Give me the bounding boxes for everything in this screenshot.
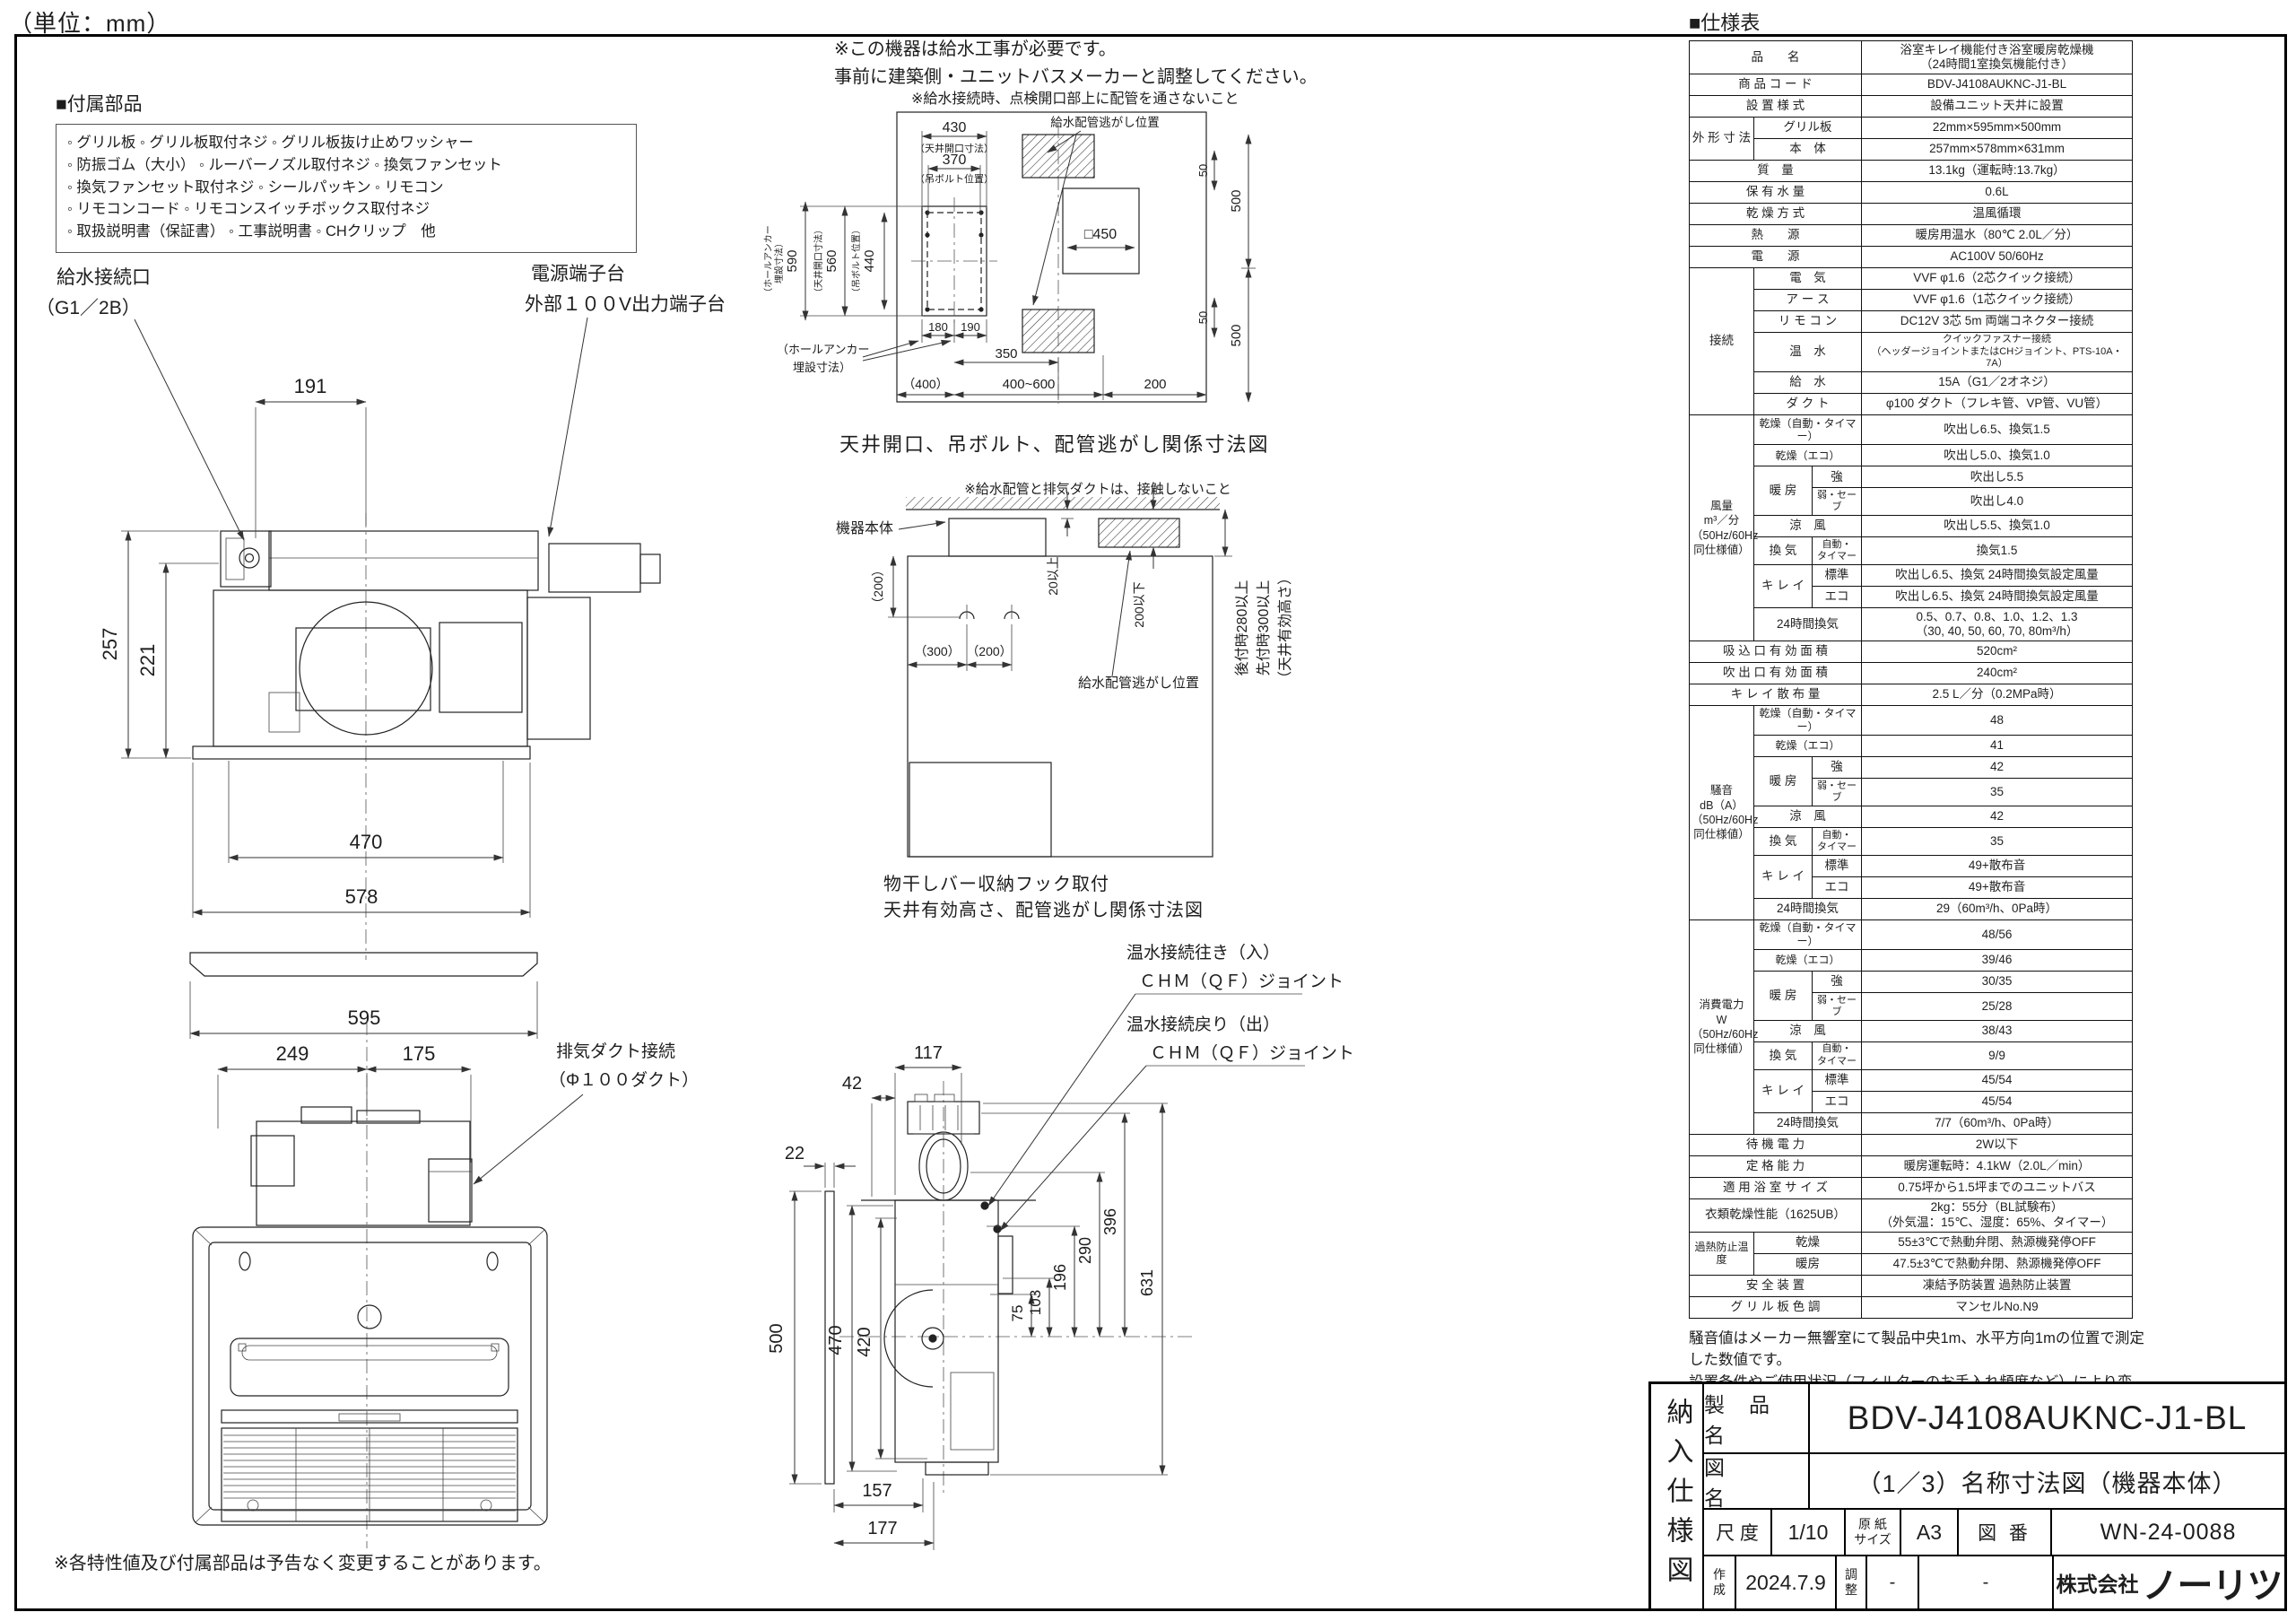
spec-cell: 熱 源	[1690, 224, 1862, 246]
spec-cell: VVF φ1.6（1芯クイック接続）	[1862, 289, 2133, 310]
spec-cell: 暖房	[1754, 1253, 1862, 1275]
spec-cell: 48/56	[1862, 919, 2133, 949]
spec-cell: 55±3℃で熱動弁閉、熱源機発停OFF	[1862, 1232, 2133, 1253]
spec-cell: 温風循環	[1862, 203, 2133, 224]
dim-50b: 50	[1196, 311, 1210, 324]
install-clearance-diagram: ※給水配管と排気ダクトは、接触しないこと	[807, 475, 1309, 919]
spec-cell: 自動・ タイマー	[1813, 537, 1862, 565]
water-inlet-label: 給水接続口	[57, 267, 151, 288]
spec-cell: 温 水	[1754, 332, 1862, 371]
spec-cell: エコ	[1813, 1091, 1862, 1112]
dim-290: 290	[1076, 1237, 1094, 1264]
drawing-name-value: （1／3）名称寸法図（機器本体）	[1810, 1454, 2284, 1508]
dim-590: 590	[785, 249, 800, 272]
unit-front-view: 249 175 排気ダクト接続 （Φ１００ダクト）	[90, 1005, 717, 1565]
dim-190: 190	[961, 320, 980, 334]
dim-22: 22	[785, 1144, 804, 1163]
anchor-note-1: （ホールアンカー	[777, 343, 869, 356]
accessories-line: ◦ 防振ゴム（大小） ◦ ルーバーノズル取付ネジ ◦ 換気ファンセット	[67, 154, 625, 177]
spec-cell: 9/9	[1862, 1041, 2133, 1069]
spec-cell: 強	[1813, 757, 1862, 779]
spec-cell: 45/54	[1862, 1069, 2133, 1091]
spec-cell: 外 形 寸 法	[1690, 117, 1754, 160]
output-terminal-label: 外部１００V出力端子台	[525, 294, 726, 315]
drawing-number-label: 図 番	[1959, 1510, 2052, 1555]
spec-cell: 42	[1862, 806, 2133, 828]
company-logo: ノーリツ	[2143, 1556, 2283, 1608]
spec-cell: 過熱防止温度	[1690, 1232, 1754, 1275]
spec-cell: 30/35	[1862, 972, 2133, 993]
spec-cell: 乾燥（エコ）	[1754, 736, 1862, 757]
revision-dash: -	[1919, 1556, 2054, 1608]
spec-row: 定 格 能 力暖房運転時：4.1kW（2.0L／min）	[1690, 1155, 2133, 1177]
spec-cell: 乾燥（エコ）	[1754, 950, 1862, 972]
product-name-label: 製 品 名	[1704, 1384, 1810, 1452]
dim-200p: （200）	[871, 563, 885, 609]
spec-cell: 35	[1862, 779, 2133, 806]
spec-cell: 換気1.5	[1862, 537, 2133, 565]
install-diagram-caption: 物干しバー収納フック取付 天井有効高さ、配管逃がし関係寸法図	[883, 872, 1204, 924]
spec-cell: ダ ク ト	[1754, 394, 1862, 415]
dim-560-caption: （天井開口寸法）	[813, 225, 824, 297]
spec-cell: 吹出し6.5、換気 24時間換気設定風量	[1862, 587, 2133, 608]
spec-cell: 乾燥（自動・タイマー）	[1754, 415, 1862, 445]
spec-cell: 49+散布音	[1862, 876, 2133, 898]
spec-row: 24時間換気7/7（60m³/h、0Pa時）	[1690, 1112, 2133, 1134]
spec-cell: クイックファスナー接続 （ヘッダージョイントまたはCHジョイント、PTS-10A…	[1862, 332, 2133, 371]
dim-300p: （300）	[914, 644, 960, 658]
created-value: 2024.7.9	[1736, 1556, 1837, 1608]
spec-row: 吹 出 口 有 効 面 積240cm²	[1690, 662, 2133, 684]
spec-row: 衣類乾燥性能（1625UB）2kg：55分（BL試験布） （外気温：15℃、湿度…	[1690, 1198, 2133, 1232]
spec-cell: 48	[1862, 705, 2133, 735]
unit-body-outline	[190, 531, 660, 976]
ceiling-opening-diagram: 430 （天井開口寸法） 370 （吊ボルト位置） 180 190 350 （4…	[762, 85, 1315, 471]
spec-cell: リ モ コ ン	[1754, 310, 1862, 332]
side-view-labels: 温水接続往き（入） ＣＨＭ（ＱＦ）ジョイント 温水接続戻り（出） ＣＨＭ（ＱＦ）…	[767, 943, 1354, 1538]
company-cell: 株式会社 ノーリツ	[2054, 1556, 2284, 1608]
dim-440-caption: （吊ボルト位置）	[850, 225, 862, 297]
spec-row: 暖房47.5±3℃で熱動弁閉、熱源機発停OFF	[1690, 1253, 2133, 1275]
dim-175: 175	[403, 1042, 436, 1065]
spec-cell: φ100 ダクト（フレキ管、VP管、VU管）	[1862, 394, 2133, 415]
spec-row: 適 用 浴 室 サ イ ズ0.75坪から1.5坪までのユニットバス	[1690, 1177, 2133, 1198]
grille-plate-edge	[190, 953, 537, 976]
spec-cell: 涼 風	[1754, 806, 1862, 828]
dim-lines	[121, 318, 587, 1039]
dim-578: 578	[345, 885, 378, 908]
spec-row: 外 形 寸 法グリル板22mm×595mm×500mm	[1690, 117, 2133, 138]
accessories-line: ◦ リモコンコード ◦ リモコンスイッチボックス取付ネジ	[67, 198, 625, 221]
adjust-label: 調 整	[1837, 1556, 1867, 1608]
product-name-row: 製 品 名 BDV-J4108AUKNC-J1-BL	[1704, 1384, 2284, 1454]
spec-cell: 定 格 能 力	[1690, 1155, 1862, 1177]
dim-196: 196	[1051, 1264, 1069, 1291]
spec-row: 品 名浴室キレイ機能付き浴室暖房乾燥機 （24時間1室換気機能付き）	[1690, 41, 2133, 74]
spec-cell: 電 気	[1754, 267, 1862, 289]
spec-cell: 商 品 コ ー ド	[1690, 74, 1862, 95]
spec-cell: AC100V 50/60Hz	[1862, 246, 2133, 267]
spec-cell: 標準	[1813, 1069, 1862, 1091]
dim-396: 396	[1101, 1208, 1119, 1235]
spec-row: キ レ イ 散 布 量2.5 L／分（0.2MPa時）	[1690, 684, 2133, 705]
spec-cell: 13.1kg（運転時:13.7kg）	[1862, 160, 2133, 181]
accessories-line: ◦ グリル板 ◦ グリル板取付ネジ ◦ グリル板抜け止めワッシャー	[67, 132, 625, 154]
spec-row: 換 気自動・ タイマー35	[1690, 828, 2133, 856]
spec-cell: 騒音 dB（A） （50Hz/60Hz 同仕様値）	[1690, 705, 1754, 919]
spec-cell: 換 気	[1754, 1041, 1813, 1069]
spec-cell: 乾燥（エコ）	[1754, 445, 1862, 466]
spec-cell: キ レ イ	[1754, 565, 1813, 608]
dim-42: 42	[842, 1074, 862, 1094]
spec-cell: 45/54	[1862, 1091, 2133, 1112]
hot-water-in-joint-label: ＣＨＭ（ＱＦ）ジョイント	[1139, 972, 1344, 991]
anchor-caption-2: 埋設寸法）	[773, 239, 785, 283]
spec-cell: 衣類乾燥性能（1625UB）	[1690, 1198, 1862, 1232]
dim-420: 420	[855, 1327, 874, 1356]
spec-row: 温 水クイックファスナー接続 （ヘッダージョイントまたはCHジョイント、PTS-…	[1690, 332, 2133, 371]
dim-350: 350	[995, 346, 1017, 362]
spec-cell: 吹出し5.5、換気1.0	[1862, 516, 2133, 537]
dim-370: 370	[943, 153, 967, 168]
spec-row: 質 量13.1kg（運転時:13.7kg）	[1690, 160, 2133, 181]
title-block: 納入仕様図 製 品 名 BDV-J4108AUKNC-J1-BL 図 名 （1／…	[1648, 1381, 2287, 1611]
spec-cell: 保 有 水 量	[1690, 181, 1862, 203]
spec-cell: 涼 風	[1754, 516, 1862, 537]
spec-cell: 質 量	[1690, 160, 1862, 181]
water-inlet-size-label: （G1／2B）	[36, 298, 141, 318]
dim-400-600: 400~600	[1003, 377, 1056, 392]
accessories-heading: ■付属部品	[56, 90, 637, 117]
spec-row: 乾燥（エコ）41	[1690, 736, 2133, 757]
created-label: 作 成	[1704, 1556, 1736, 1608]
water-supply-note: ※この機器は給水工事が必要です。 事前に建築側・ユニットバスメーカーと調整してく…	[834, 36, 1318, 92]
accessories-line: ◦ 取扱説明書（保証書） ◦ 工事説明書 ◦ CHクリップ 他	[67, 221, 625, 243]
dim-249: 249	[276, 1042, 309, 1065]
spec-cell: 24時間換気	[1754, 1112, 1862, 1134]
spec-row: グ リ ル 板 色 調マンセルNo.N9	[1690, 1296, 2133, 1318]
spec-cell: 吹出し5.5	[1862, 466, 2133, 488]
dim-200-max: 200以下	[1132, 581, 1146, 627]
drawing-number-value: WN-24-0088	[2052, 1510, 2284, 1555]
spec-row: 給 水15A（G1／2オネジ）	[1690, 372, 2133, 394]
paper-size-value: A3	[1901, 1510, 1959, 1555]
scale-row: 尺 度 1/10 原 紙 サイズ A3 図 番 WN-24-0088	[1704, 1510, 2284, 1556]
spec-cell: グ リ ル 板 色 調	[1690, 1296, 1862, 1318]
dim-103: 103	[1027, 1290, 1044, 1315]
hot-water-out-label: 温水接続戻り（出）	[1126, 1015, 1280, 1034]
scale-value: 1/10	[1772, 1510, 1846, 1555]
spec-row: 過熱防止温度乾燥55±3℃で熱動弁閉、熱源機発停OFF	[1690, 1232, 2133, 1253]
spec-row: 騒音 dB（A） （50Hz/60Hz 同仕様値）乾燥（自動・タイマー）48	[1690, 705, 2133, 735]
dim-470: 470	[350, 831, 383, 853]
spec-cell: マンセルNo.N9	[1862, 1296, 2133, 1318]
spec-cell: 自動・ タイマー	[1813, 1041, 1862, 1069]
spec-row: 消費電力 W （50Hz/60Hz 同仕様値）乾燥（自動・タイマー）48/56	[1690, 919, 2133, 949]
spec-cell: 適 用 浴 室 サ イ ズ	[1690, 1177, 1862, 1198]
dim-50a: 50	[1196, 164, 1210, 177]
dim-450: □450	[1084, 227, 1117, 242]
spec-cell: 257mm×578mm×631mm	[1862, 138, 2133, 160]
spec-section: ■仕様表 品 名浴室キレイ機能付き浴室暖房乾燥機 （24時間1室換気機能付き） …	[1689, 7, 2148, 1416]
dim-430: 430	[943, 120, 967, 135]
spec-cell: 強	[1813, 466, 1862, 488]
spec-cell: 暖 房	[1754, 466, 1813, 516]
spec-cell: 乾燥	[1754, 1232, 1862, 1253]
spec-cell: BDV-J4108AUKNC-J1-BL	[1862, 74, 2133, 95]
dim-470: 470	[826, 1325, 846, 1355]
ceiling-diagram-caption: 天井開口、吊ボルト、配管逃がし関係寸法図	[839, 429, 1270, 458]
spec-row: ダ ク トφ100 ダクト（フレキ管、VP管、VU管）	[1690, 394, 2133, 415]
pipe-escape-label: 給水配管逃がし位置	[1078, 675, 1199, 691]
spec-cell: 暖 房	[1754, 972, 1813, 1021]
spec-cell: 自動・ タイマー	[1813, 828, 1862, 856]
unit-side-view: 温水接続往き（入） ＣＨＭ（ＱＦ）ジョイント 温水接続戻り（出） ＣＨＭ（ＱＦ）…	[744, 942, 1318, 1570]
dim-400: （400）	[902, 377, 948, 391]
product-name-value: BDV-J4108AUKNC-J1-BL	[1810, 1384, 2284, 1452]
spec-row: 保 有 水 量0.6L	[1690, 181, 2133, 203]
caption-line: 天井有効高さ、配管逃がし関係寸法図	[883, 898, 1204, 924]
accessories-box: ◦ グリル板 ◦ グリル板取付ネジ ◦ グリル板抜け止めワッシャー ◦ 防振ゴム…	[56, 124, 637, 253]
spec-cell: 暖房運転時：4.1kW（2.0L／min）	[1862, 1155, 2133, 1177]
spec-cell: 吹出し4.0	[1862, 488, 2133, 516]
dim-117: 117	[914, 1043, 943, 1063]
exhaust-duct	[429, 1159, 472, 1222]
exhaust-duct-label: 排気ダクト接続	[556, 1041, 675, 1061]
spec-heading: ■仕様表	[1689, 7, 2148, 36]
dim-157: 157	[862, 1481, 891, 1501]
dim-370-caption: （吊ボルト位置）	[915, 172, 994, 185]
spec-row: 乾燥（エコ）39/46	[1690, 950, 2133, 972]
water-pipe-box	[1099, 519, 1179, 547]
height-note-1: 後付時280以上	[1234, 580, 1250, 676]
spec-row: 換 気自動・ タイマー9/9	[1690, 1041, 2133, 1069]
spec-cell: 0.5、0.7、0.8、1.0、1.2、1.3 （30, 40, 50, 60,…	[1862, 608, 2133, 641]
dim-257: 257	[99, 628, 121, 661]
dim-221: 221	[136, 644, 159, 677]
spec-cell: 吸 込 口 有 効 面 積	[1690, 641, 1862, 662]
spec-cell: 7/7（60m³/h、0Pa時）	[1862, 1112, 2133, 1134]
drawing-name-row: 図 名 （1／3）名称寸法図（機器本体）	[1704, 1454, 2284, 1510]
spec-cell: 換 気	[1754, 537, 1813, 565]
spec-cell: 吹出し5.0、換気1.0	[1862, 445, 2133, 466]
spec-row: 待 機 電 力2W以下	[1690, 1134, 2133, 1155]
spec-cell: 2W以下	[1862, 1134, 2133, 1155]
spec-row: 24時間換気29（60m³/h、0Pa時）	[1690, 898, 2133, 919]
note-line: 騒音値はメーカー無響室にて製品中央1m、水平方向1mの位置で測定した数値です。	[1689, 1328, 2144, 1373]
spec-cell: 乾燥（自動・タイマー）	[1754, 705, 1862, 735]
created-row: 作 成 2024.7.9 調 整 - - 株式会社 ノーリツ	[1704, 1556, 2284, 1608]
drawing-name-label: 図 名	[1704, 1454, 1810, 1508]
spec-cell: エコ	[1813, 587, 1862, 608]
power-terminal-label: 電源端子台	[531, 264, 625, 284]
hot-water-out-joint-label: ＣＨＭ（ＱＦ）ジョイント	[1150, 1043, 1354, 1063]
spec-row: 設 置 様 式設備ユニット天井に設置	[1690, 95, 2133, 117]
drawing-sheet: （単位：mm） ■付属部品 ◦ グリル板 ◦ グリル板取付ネジ ◦ グリル板抜け…	[0, 0, 2296, 1621]
spec-row: 暖 房強42	[1690, 757, 2133, 779]
pipe-escape-label: 給水配管逃がし位置	[1050, 116, 1160, 129]
spec-cell: 換 気	[1754, 828, 1813, 856]
spec-row: 24時間換気0.5、0.7、0.8、1.0、1.2、1.3 （30, 40, 5…	[1690, 608, 2133, 641]
spec-cell: 弱・セーブ	[1813, 488, 1862, 516]
spec-cell: 強	[1813, 972, 1862, 993]
spec-row: 本 体257mm×578mm×631mm	[1690, 138, 2133, 160]
exhaust-duct-size-label: （Φ１００ダクト）	[549, 1070, 699, 1090]
document-type-vertical: 納入仕様図	[1651, 1384, 1704, 1608]
spec-cell: 520cm²	[1862, 641, 2133, 662]
spec-cell: キ レ イ	[1754, 1069, 1813, 1112]
caption-line: 物干しバー収納フック取付	[883, 872, 1204, 898]
spec-cell: 0.6L	[1862, 181, 2133, 203]
spec-cell: 41	[1862, 736, 2133, 757]
spec-row: ア ー スVVF φ1.6（1芯クイック接続）	[1690, 289, 2133, 310]
dim-631: 631	[1138, 1269, 1156, 1296]
title-block-main: 製 品 名 BDV-J4108AUKNC-J1-BL 図 名 （1／3）名称寸法…	[1704, 1384, 2284, 1608]
spec-row: 乾燥（エコ）吹出し5.0、換気1.0	[1690, 445, 2133, 466]
dim-200: 200	[1144, 377, 1166, 392]
spec-cell: 35	[1862, 828, 2133, 856]
disclaimer-note: ※各特性値及び付属部品は予告なく変更することがあります。	[54, 1548, 552, 1574]
dim-500a: 500	[1229, 189, 1244, 212]
spec-cell: 待 機 電 力	[1690, 1134, 1862, 1155]
dim-lines	[218, 1069, 583, 1184]
spec-cell: 24時間換気	[1754, 608, 1862, 641]
side-outline	[825, 1094, 1036, 1484]
spec-cell: 乾燥（自動・タイマー）	[1754, 919, 1862, 949]
spec-row: 商 品 コ ー ドBDV-J4108AUKNC-J1-BL	[1690, 74, 2133, 95]
dim-500b: 500	[1229, 324, 1244, 346]
spec-row: 安 全 装 置凍結予防装置 過熱防止装置	[1690, 1275, 2133, 1296]
unit-body-label: 機器本体	[836, 520, 893, 536]
front-outline	[193, 1107, 547, 1525]
spec-cell: 設 置 様 式	[1690, 95, 1862, 117]
spec-cell: 吹出し6.5、換気1.5	[1862, 415, 2133, 445]
spec-cell: 標準	[1813, 855, 1862, 876]
hot-water-in-label: 温水接続往き（入）	[1126, 943, 1280, 963]
spec-cell: 弱・セーブ	[1813, 779, 1862, 806]
unit-top-view: 給水接続口 （G1／2B） 電源端子台 外部１００V出力端子台 191 257 …	[27, 260, 735, 1059]
anchor-note-2: 埋設寸法）	[793, 361, 851, 374]
spec-cell: 2.5 L／分（0.2MPa時）	[1862, 684, 2133, 705]
spec-cell: 24時間換気	[1754, 898, 1862, 919]
spec-cell: 凍結予防装置 過熱防止装置	[1862, 1275, 2133, 1296]
front-view-labels: 249 175 排気ダクト接続 （Φ１００ダクト）	[276, 1041, 700, 1090]
hooks	[960, 605, 1019, 619]
spec-cell: 240cm²	[1862, 662, 2133, 684]
spec-cell: 電 源	[1690, 246, 1862, 267]
spec-cell: 品 名	[1690, 41, 1862, 74]
spec-cell: 設備ユニット天井に設置	[1862, 95, 2133, 117]
accessories-section: ■付属部品 ◦ グリル板 ◦ グリル板取付ネジ ◦ グリル板抜け止めワッシャー …	[56, 90, 637, 253]
spec-cell: 標準	[1813, 565, 1862, 587]
ceiling-hatch	[906, 497, 1220, 509]
unit-body-box	[949, 519, 1046, 556]
spec-cell: 22mm×595mm×500mm	[1862, 117, 2133, 138]
anchor-caption-1: （ホールアンカー	[763, 225, 774, 297]
top-view-labels: 給水接続口 （G1／2B） 電源端子台 外部１００V出力端子台 191 257 …	[36, 264, 726, 1029]
spec-row: 吸 込 口 有 効 面 積520cm²	[1690, 641, 2133, 662]
spec-cell: 47.5±3℃で熱動弁閉、熱源機発停OFF	[1862, 1253, 2133, 1275]
spec-row: 接続電 気VVF φ1.6（2芯クイック接続）	[1690, 267, 2133, 289]
dim-lines	[789, 994, 1305, 1550]
spec-cell: 暖 房	[1754, 757, 1813, 806]
dim-440: 440	[862, 249, 877, 272]
dim-75: 75	[1009, 1305, 1026, 1322]
spec-cell: キ レ イ 散 布 量	[1690, 684, 1862, 705]
spec-cell: VVF φ1.6（2芯クイック接続）	[1862, 267, 2133, 289]
dim-20-min: 20以上	[1046, 556, 1060, 596]
height-note-3: （天井有効高さ）	[1277, 571, 1293, 685]
adjust-value: -	[1867, 1556, 1919, 1608]
note-line: ※この機器は給水工事が必要です。	[834, 36, 1318, 64]
spec-row: 乾 燥 方 式温風循環	[1690, 203, 2133, 224]
accessories-line: ◦ 換気ファンセット取付ネジ ◦ シールパッキン ◦ リモコン	[67, 177, 625, 199]
dim-560: 560	[824, 249, 839, 272]
spec-cell: 弱・セーブ	[1813, 993, 1862, 1021]
spec-cell: 15A（G1／2オネジ）	[1862, 372, 2133, 394]
dim-177: 177	[867, 1519, 897, 1538]
spec-cell: 39/46	[1862, 950, 2133, 972]
spec-cell: DC12V 3芯 5m 両端コネクター接続	[1862, 310, 2133, 332]
spec-cell: 49+散布音	[1862, 855, 2133, 876]
spec-cell: 涼 風	[1754, 1020, 1862, 1041]
spec-cell: 暖房用温水（80℃ 2.0L／分）	[1862, 224, 2133, 246]
spec-row: リ モ コ ンDC12V 3芯 5m 両端コネクター接続	[1690, 310, 2133, 332]
spec-cell: 本 体	[1754, 138, 1862, 160]
company-prefix: 株式会社	[2057, 1567, 2139, 1598]
spec-cell: 42	[1862, 757, 2133, 779]
spec-row: 暖 房強吹出し5.5	[1690, 466, 2133, 488]
spec-cell: 25/28	[1862, 993, 2133, 1021]
spec-cell: 29（60m³/h、0Pa時）	[1862, 898, 2133, 919]
spec-cell: ア ー ス	[1754, 289, 1862, 310]
spec-row: 暖 房強30/35	[1690, 972, 2133, 993]
dim-191: 191	[294, 375, 327, 397]
spec-cell: キ レ イ	[1754, 855, 1813, 898]
spec-cell: 2kg：55分（BL試験布） （外気温：15℃、湿度：65%、タイマー）	[1862, 1198, 2133, 1232]
scale-label: 尺 度	[1704, 1510, 1772, 1555]
ceiling-dim-labels: 430 （天井開口寸法） 370 （吊ボルト位置） 180 190 350 （4…	[763, 116, 1244, 392]
spec-row: キ レ イ標準吹出し6.5、換気 24時間換気設定風量	[1690, 565, 2133, 587]
spec-cell: 浴室キレイ機能付き浴室暖房乾燥機 （24時間1室換気機能付き）	[1862, 41, 2133, 74]
spec-cell: グリル板	[1754, 117, 1862, 138]
spec-cell: 0.75坪から1.5坪までのユニットバス	[1862, 1177, 2133, 1198]
spec-cell: 風量 m³／分 （50Hz/60Hz 同仕様値）	[1690, 415, 1754, 641]
spec-cell: 安 全 装 置	[1690, 1275, 1862, 1296]
spec-cell: 消費電力 W （50Hz/60Hz 同仕様値）	[1690, 919, 1754, 1134]
spec-row: 熱 源暖房用温水（80℃ 2.0L／分）	[1690, 224, 2133, 246]
duct-contact-note: ※給水配管と排気ダクトは、接触しないこと	[964, 482, 1231, 497]
spec-cell: 乾 燥 方 式	[1690, 203, 1862, 224]
spec-cell: 吹 出 口 有 効 面 積	[1690, 662, 1862, 684]
spec-cell: 38/43	[1862, 1020, 2133, 1041]
height-note-2: 先付時300以上	[1256, 580, 1272, 676]
dim-180: 180	[928, 320, 948, 334]
spec-row: キ レ イ標準45/54	[1690, 1069, 2133, 1091]
spec-cell: エコ	[1813, 876, 1862, 898]
dim-200p2: （200）	[966, 644, 1012, 658]
paper-size-label: 原 紙 サイズ	[1846, 1510, 1901, 1555]
spec-row: 風量 m³／分 （50Hz/60Hz 同仕様値）乾燥（自動・タイマー）吹出し6.…	[1690, 415, 2133, 445]
spec-row: キ レ イ標準49+散布音	[1690, 855, 2133, 876]
spec-row: 電 源AC100V 50/60Hz	[1690, 246, 2133, 267]
spec-table: 品 名浴室キレイ機能付き浴室暖房乾燥機 （24時間1室換気機能付き） 商 品 コ…	[1689, 40, 2133, 1319]
spec-cell: 吹出し6.5、換気 24時間換気設定風量	[1862, 565, 2133, 587]
spec-cell: 接続	[1690, 267, 1754, 414]
spec-cell: 給 水	[1754, 372, 1862, 394]
dim-500: 500	[767, 1323, 787, 1353]
